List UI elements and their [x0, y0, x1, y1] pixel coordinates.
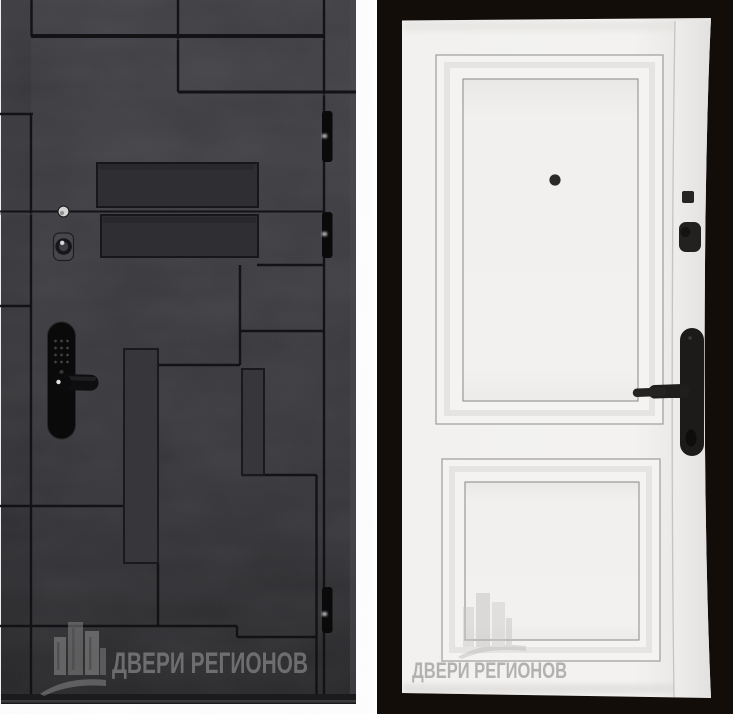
svg-text:ДВЕРИ РЕГИОНОВ: ДВЕРИ РЕГИОНОВ [112, 647, 308, 680]
svg-text:ДВЕРИ РЕГИОНОВ: ДВЕРИ РЕГИОНОВ [412, 658, 567, 683]
